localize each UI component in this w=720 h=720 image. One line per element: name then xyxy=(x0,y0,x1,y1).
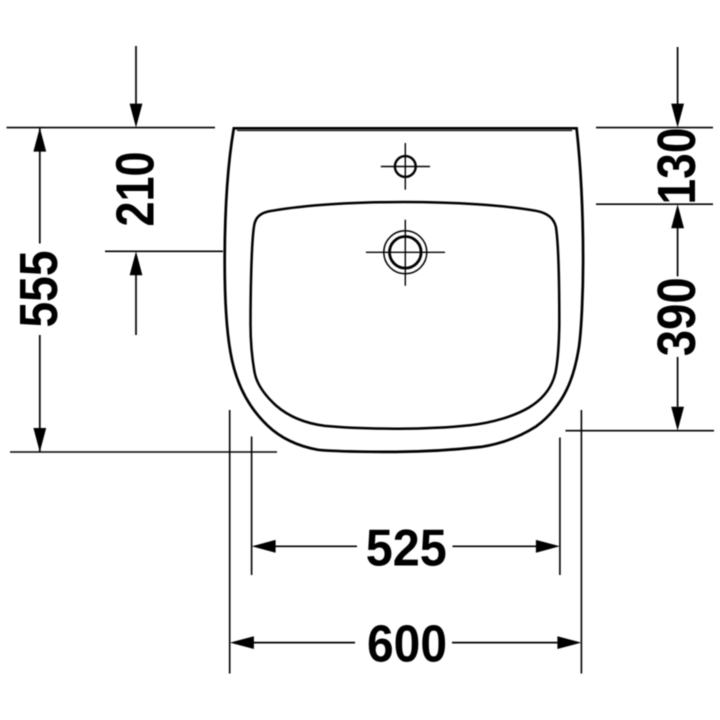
svg-text:390: 390 xyxy=(647,277,707,356)
svg-text:600: 600 xyxy=(367,616,447,674)
svg-text:525: 525 xyxy=(366,519,447,577)
svg-text:130: 130 xyxy=(647,128,707,205)
svg-text:210: 210 xyxy=(106,152,166,227)
svg-text:555: 555 xyxy=(9,251,69,328)
